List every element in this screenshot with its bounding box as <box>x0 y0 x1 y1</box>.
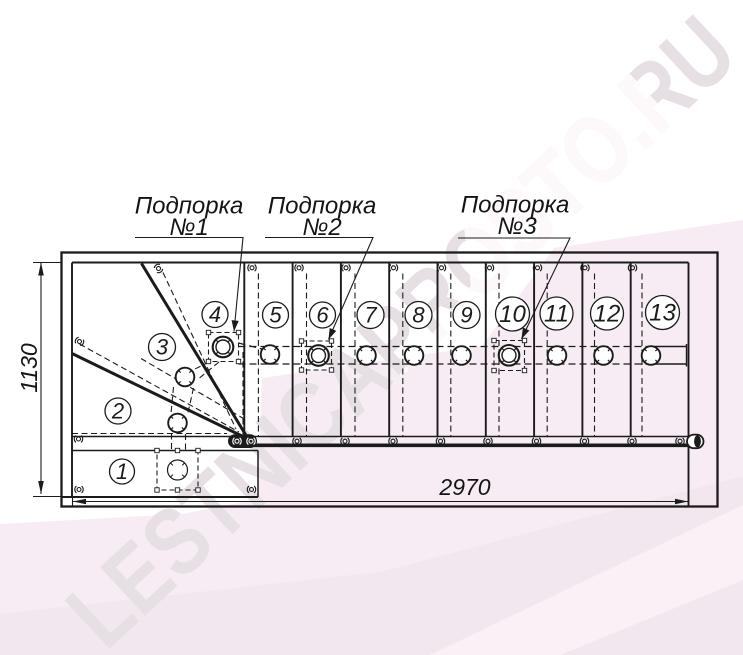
baluster-post <box>261 345 280 364</box>
step-number-3: 3 <box>156 335 169 360</box>
baluster-post <box>357 346 376 365</box>
baluster-post <box>176 368 195 387</box>
drawing-page: LESTNICAPROSTO.RU LESTNICAPROSTO.RU <box>0 0 743 655</box>
baluster-post <box>405 346 424 365</box>
baluster-post <box>168 414 187 433</box>
baluster-post <box>452 346 471 365</box>
step-number-12: 12 <box>594 301 621 328</box>
support-post-3 <box>499 345 520 366</box>
baluster-post <box>642 346 661 365</box>
step-number-6: 6 <box>316 303 329 328</box>
support-label-1-line2: №1 <box>169 214 208 241</box>
support-post-2 <box>308 345 329 366</box>
step-number-4: 4 <box>209 302 221 327</box>
base-post <box>168 460 188 480</box>
step-number-2: 2 <box>111 399 124 424</box>
support-label-2-line2: №2 <box>302 214 341 241</box>
step-number-11: 11 <box>544 301 569 328</box>
step-number-13: 13 <box>649 300 676 327</box>
step-number-1: 1 <box>116 459 128 484</box>
step-number-10: 10 <box>499 301 526 328</box>
step-number-9: 9 <box>460 303 472 328</box>
step-number-8: 8 <box>412 303 425 328</box>
step-number-7: 7 <box>364 303 377 328</box>
support-post-1 <box>213 337 234 358</box>
baluster-post <box>548 346 567 365</box>
staircase-plan-drawing: LESTNICAPROSTO.RU LESTNICAPROSTO.RU <box>0 0 743 655</box>
support-labels: Подпорка №1 Подпорка №2 Подпорка №3 <box>135 192 570 242</box>
dimension-width-value: 2970 <box>438 474 490 500</box>
step-number-5: 5 <box>269 303 282 328</box>
baluster-post <box>594 346 613 365</box>
support-label-3-line2: №3 <box>497 213 537 240</box>
dimension-height-value: 1130 <box>16 343 42 393</box>
